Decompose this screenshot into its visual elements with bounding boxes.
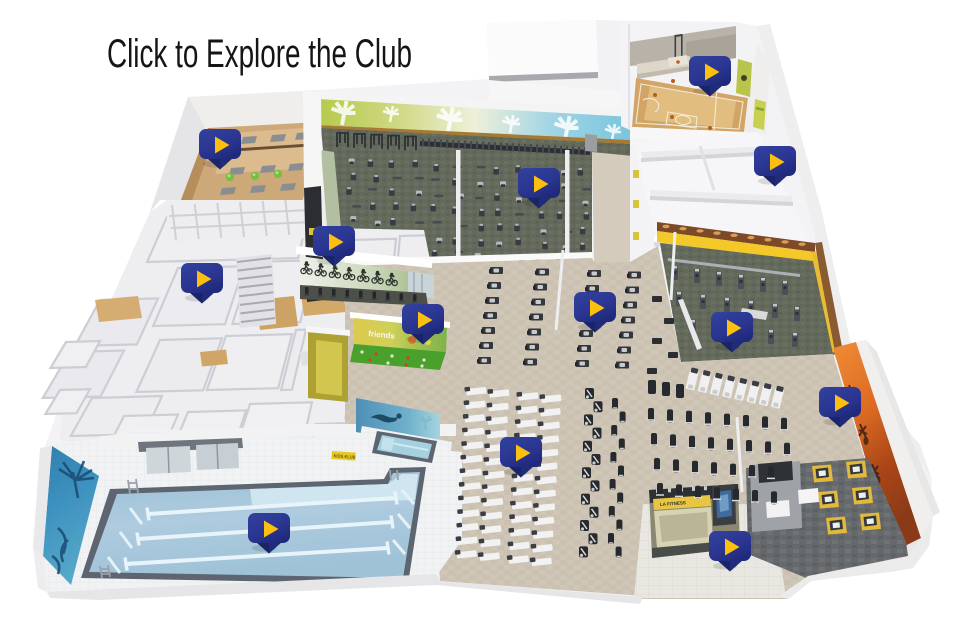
svg-text:Click to Explore the Club: Click to Explore the Club <box>107 32 412 76</box>
